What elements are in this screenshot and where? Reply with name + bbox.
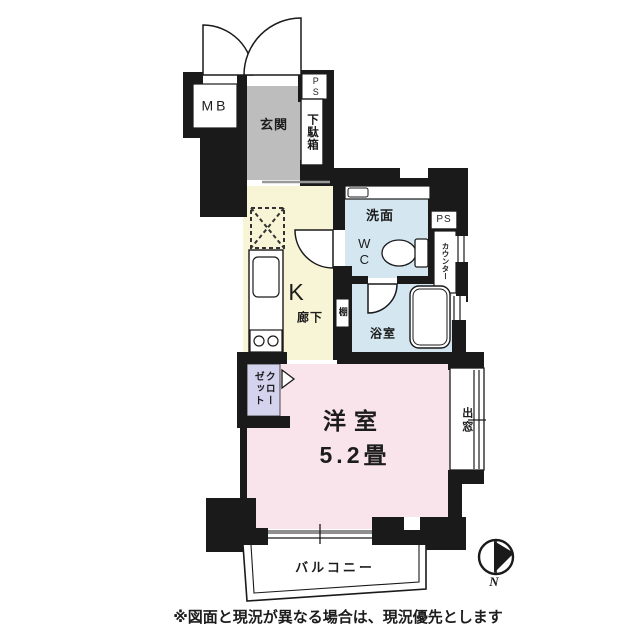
footnote-text: ※図面と現況が異なる場合は、現況優先とします: [173, 610, 503, 626]
compass-north-label: N: [489, 575, 498, 589]
pipe-space-right-label: PS: [436, 215, 451, 226]
floorplan-canvas: MB PS 玄関 下駄箱 洗面 WC PS カウンター K 廊下 棚 浴室 クロ…: [0, 0, 640, 640]
counter-window: [455, 236, 468, 262]
balcony-label: バルコニー: [295, 561, 375, 575]
entrance-label: 玄関: [260, 118, 288, 132]
bay-window-label: 出窓: [460, 407, 472, 435]
counter-label: カウンター: [441, 242, 449, 280]
western-room-size-label: 5.2畳: [320, 443, 391, 467]
closet-label-col2: ゼット: [252, 371, 263, 407]
hallway-label: 廊下: [297, 312, 323, 325]
kitchen-sink: [253, 257, 279, 297]
bathroom-label: 浴室: [370, 328, 396, 341]
toilet-bowl: [382, 240, 416, 266]
toilet-label: WC: [357, 236, 371, 268]
washbasin: [348, 188, 368, 197]
pipe-space-top-label: PS: [310, 76, 319, 98]
kitchen-label: K: [288, 280, 303, 304]
entrance-door-right: [244, 18, 301, 75]
shelf-label: 棚: [337, 307, 346, 317]
toilet-tank: [415, 239, 428, 267]
north-compass-icon: [479, 540, 514, 574]
meter-box-label: MB: [202, 99, 229, 114]
bathroom-window: [451, 296, 466, 320]
washroom-label: 洗面: [366, 209, 394, 223]
closet-label-col1: クロー: [263, 371, 274, 407]
wall-notch: [404, 517, 420, 530]
western-room-label: 洋室: [323, 409, 385, 433]
shoe-cabinet-label: 下駄箱: [306, 113, 318, 151]
bathtub: [410, 286, 450, 348]
